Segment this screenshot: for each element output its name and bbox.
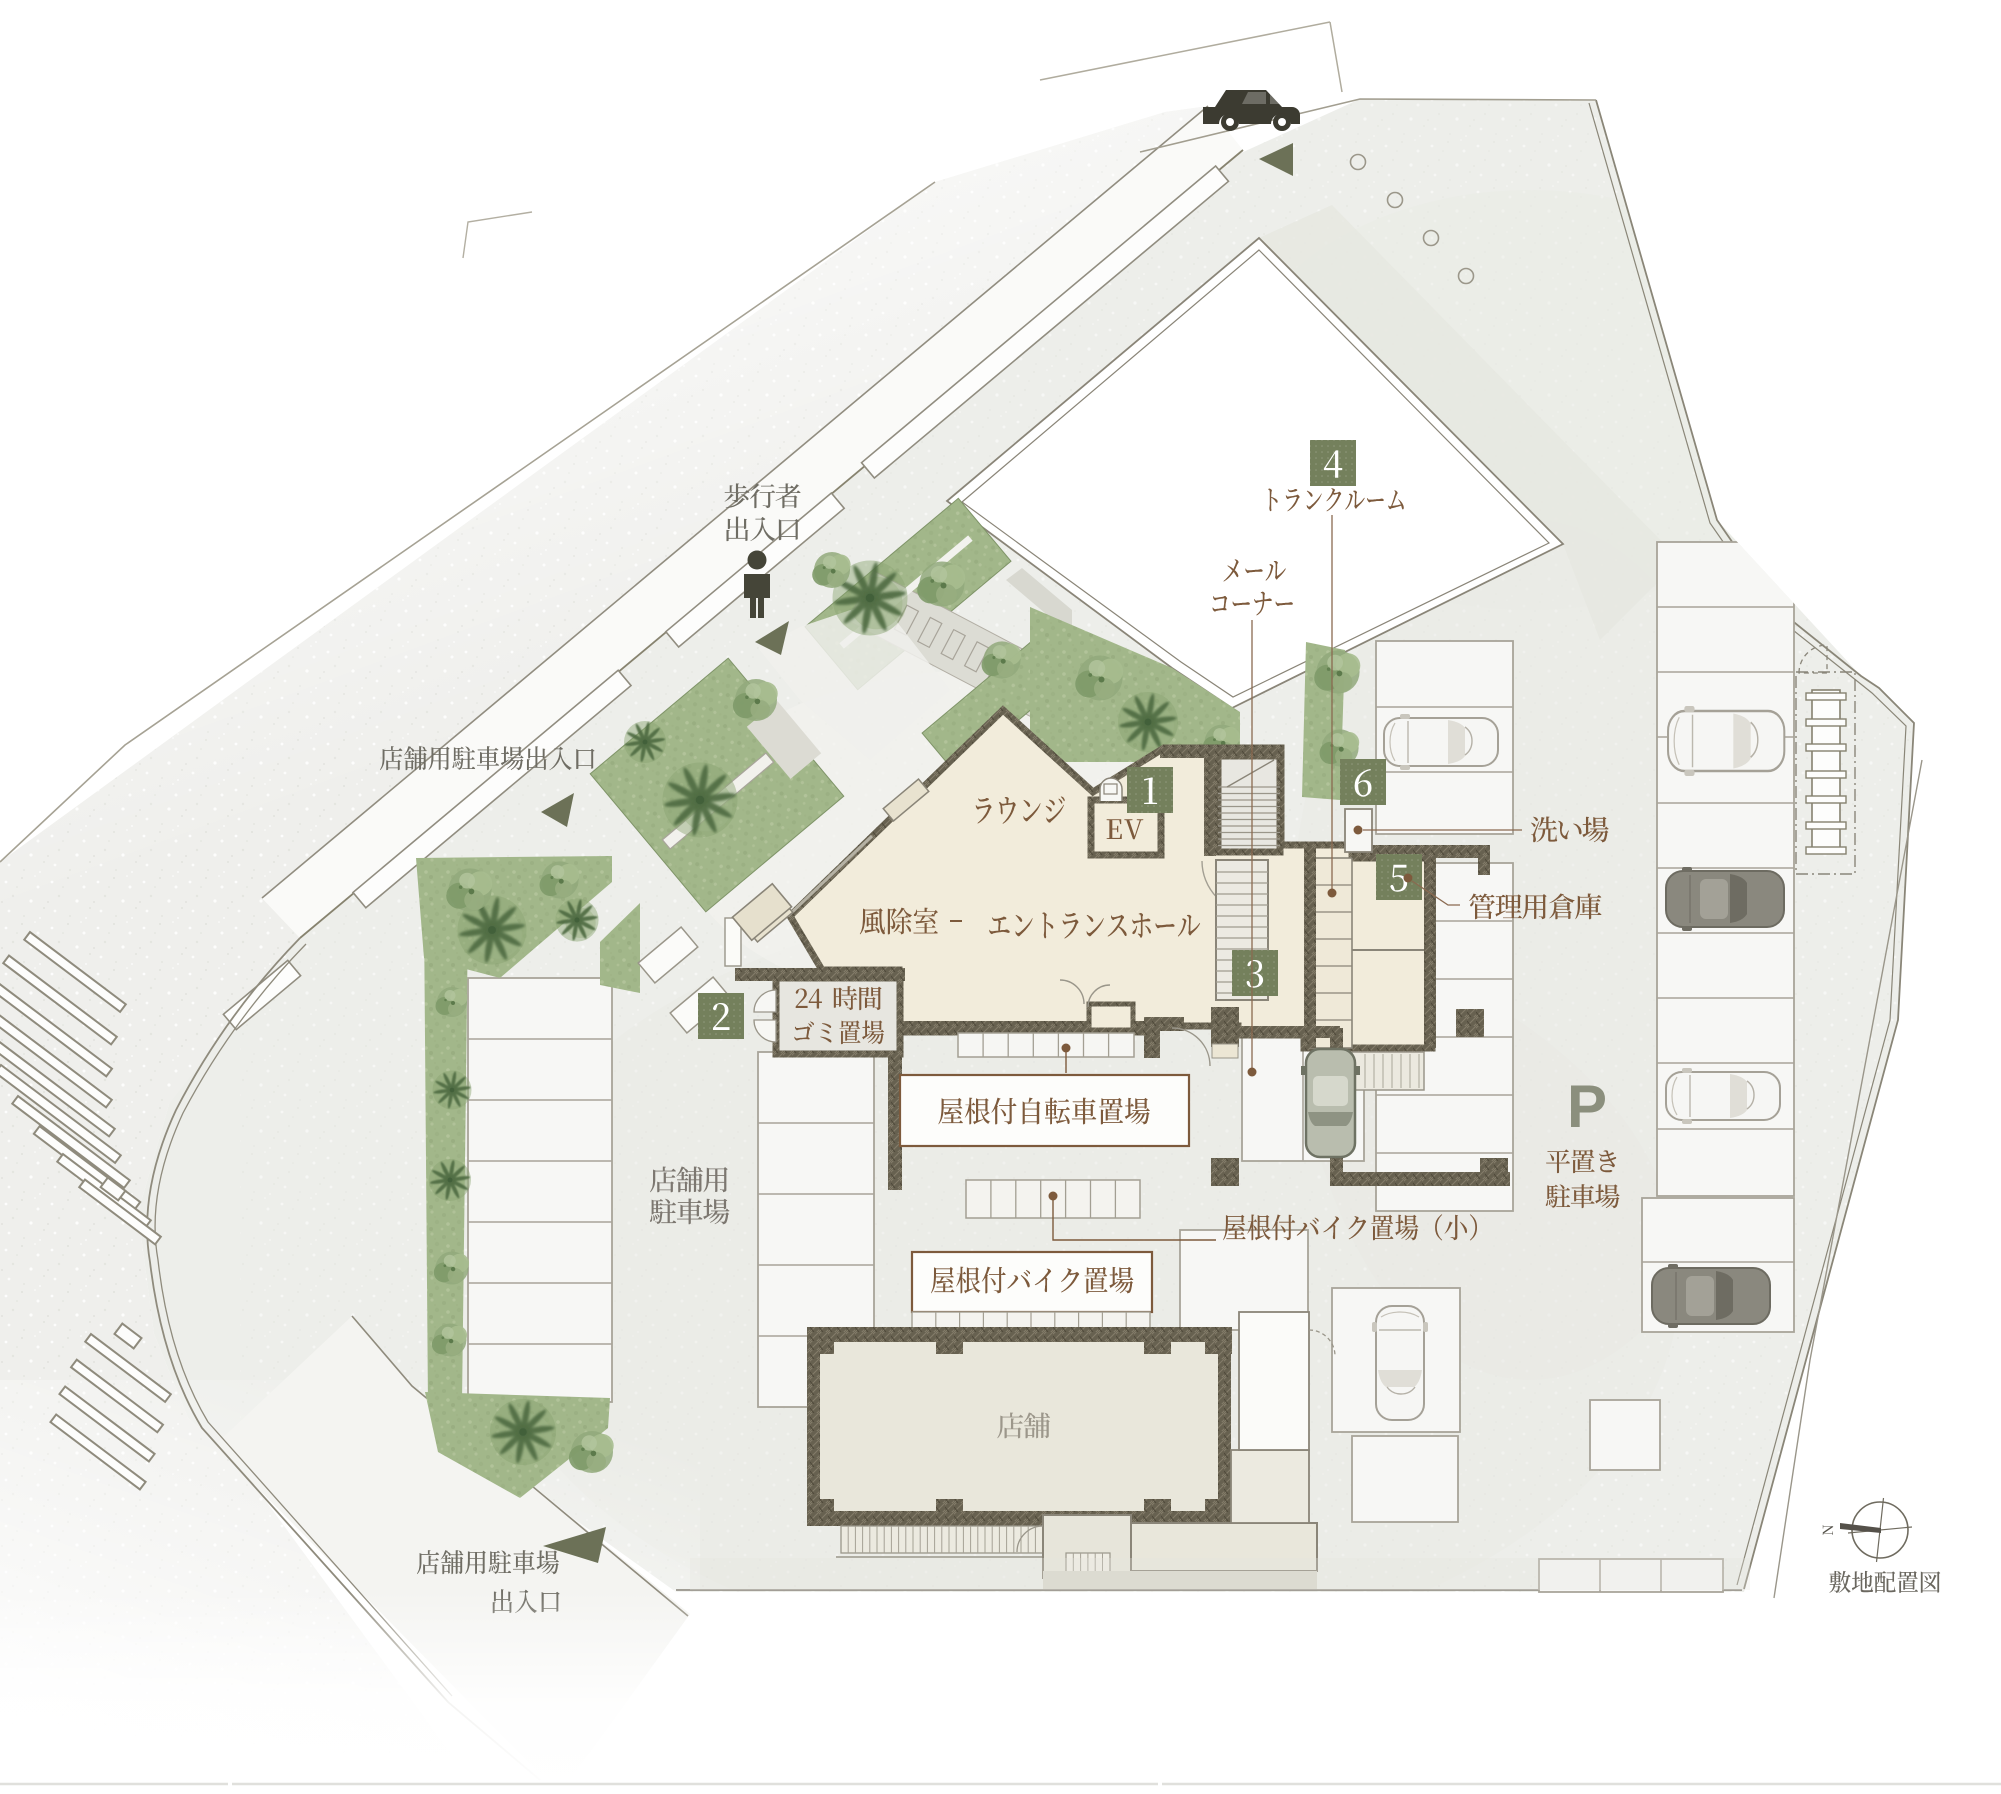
svg-text:P: P (1567, 1073, 1607, 1140)
